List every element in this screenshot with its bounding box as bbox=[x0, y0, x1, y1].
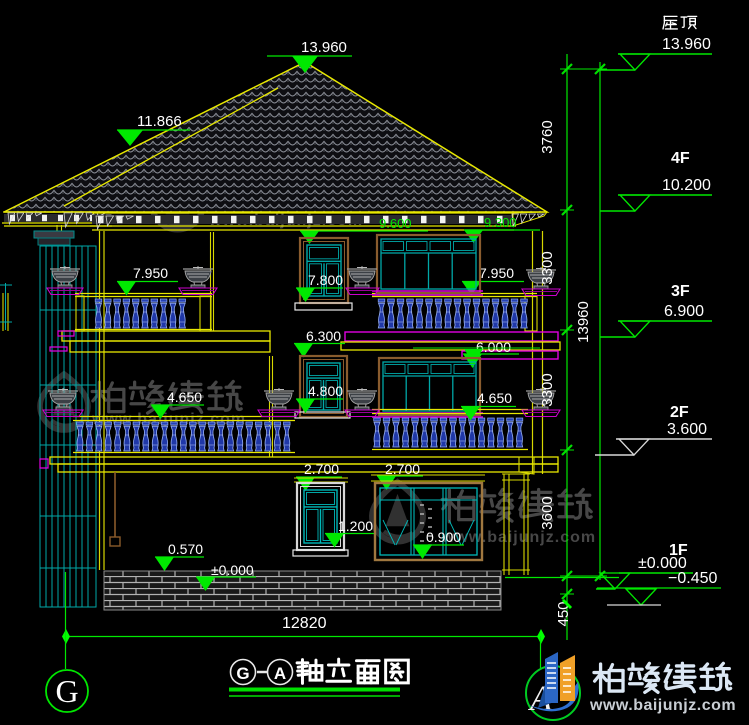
svg-text:3300: 3300 bbox=[539, 251, 556, 284]
svg-text:3300: 3300 bbox=[539, 373, 556, 406]
svg-text:7.800: 7.800 bbox=[308, 272, 343, 288]
svg-text:0.900: 0.900 bbox=[426, 529, 461, 545]
svg-text:G: G bbox=[236, 664, 249, 683]
svg-text:www.baijunjz.com: www.baijunjz.com bbox=[589, 697, 736, 714]
svg-text:4.800: 4.800 bbox=[308, 383, 343, 399]
svg-text:3F: 3F bbox=[671, 283, 690, 300]
svg-text:−0.450: −0.450 bbox=[668, 570, 717, 587]
svg-text:2.700: 2.700 bbox=[304, 461, 339, 477]
svg-text:9.600: 9.600 bbox=[379, 216, 412, 231]
svg-text:9.300: 9.300 bbox=[484, 215, 517, 230]
svg-text:3600: 3600 bbox=[539, 496, 556, 529]
svg-text:6.300: 6.300 bbox=[306, 328, 341, 344]
svg-text:1.200: 1.200 bbox=[338, 518, 373, 534]
svg-text:7.950: 7.950 bbox=[133, 265, 168, 281]
svg-text:4F: 4F bbox=[671, 150, 690, 167]
svg-text:3760: 3760 bbox=[539, 120, 556, 153]
svg-text:0.570: 0.570 bbox=[168, 541, 203, 557]
svg-text:4.650: 4.650 bbox=[477, 390, 512, 406]
svg-text:13.960: 13.960 bbox=[301, 39, 347, 56]
svg-text:13.960: 13.960 bbox=[662, 36, 711, 53]
svg-text:13960: 13960 bbox=[575, 301, 592, 343]
svg-text:A: A bbox=[274, 664, 286, 683]
svg-text:6.000: 6.000 bbox=[476, 339, 511, 355]
svg-text:11.866: 11.866 bbox=[137, 113, 182, 130]
svg-text:±0.000: ±0.000 bbox=[211, 562, 254, 578]
svg-text:6.900: 6.900 bbox=[664, 303, 704, 320]
svg-text:7.950: 7.950 bbox=[479, 265, 514, 281]
svg-text:2F: 2F bbox=[670, 404, 689, 421]
svg-text:www.baijunjz.com: www.baijunjz.com bbox=[91, 411, 246, 428]
svg-text:G: G bbox=[55, 673, 78, 709]
svg-text:12820: 12820 bbox=[282, 615, 327, 632]
svg-text:www.baijunjz.com: www.baijunjz.com bbox=[441, 529, 596, 546]
svg-text:4.650: 4.650 bbox=[167, 389, 202, 405]
svg-text:10.200: 10.200 bbox=[662, 177, 711, 194]
svg-text:3.600: 3.600 bbox=[667, 421, 707, 438]
